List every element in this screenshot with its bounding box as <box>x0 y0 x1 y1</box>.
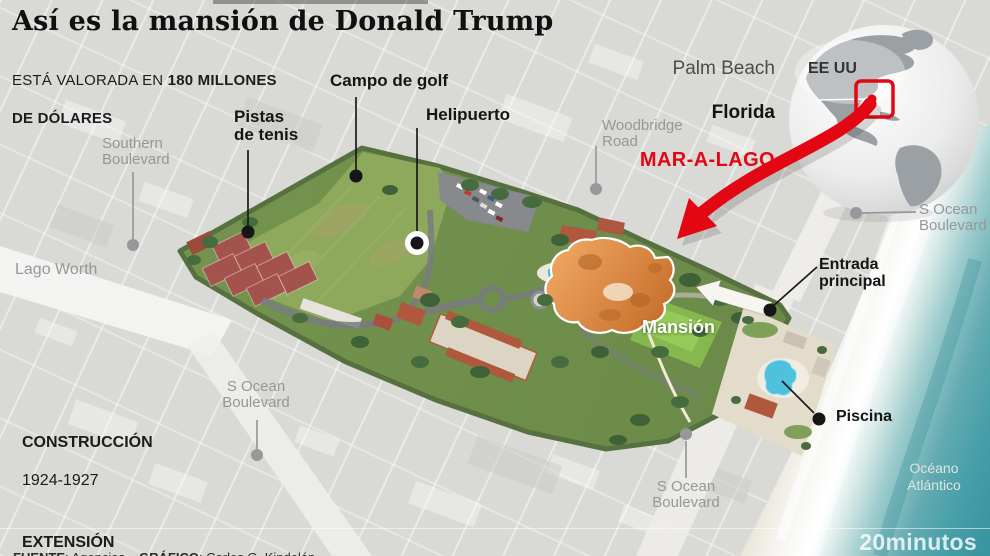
golf-dot <box>350 170 363 183</box>
aerial-map-artwork <box>0 0 990 556</box>
footer-divider <box>0 528 990 529</box>
infographic-root: Así es la mansión de Donald Trump ESTÁ V… <box>0 0 990 556</box>
s-ocean-mid-dot <box>251 449 263 461</box>
heliport-dot <box>411 237 424 250</box>
southern-blvd-dot <box>127 239 139 251</box>
s-ocean-right-dot <box>850 207 862 219</box>
entrance-dot <box>764 304 777 317</box>
tennis-dot <box>242 226 255 239</box>
mar-a-lago-estate <box>180 148 789 449</box>
woodbridge-dot <box>590 183 602 195</box>
florida-pointer-line <box>817 99 868 100</box>
s-ocean-bottom-dot <box>680 428 692 440</box>
pool-dot <box>813 413 826 426</box>
